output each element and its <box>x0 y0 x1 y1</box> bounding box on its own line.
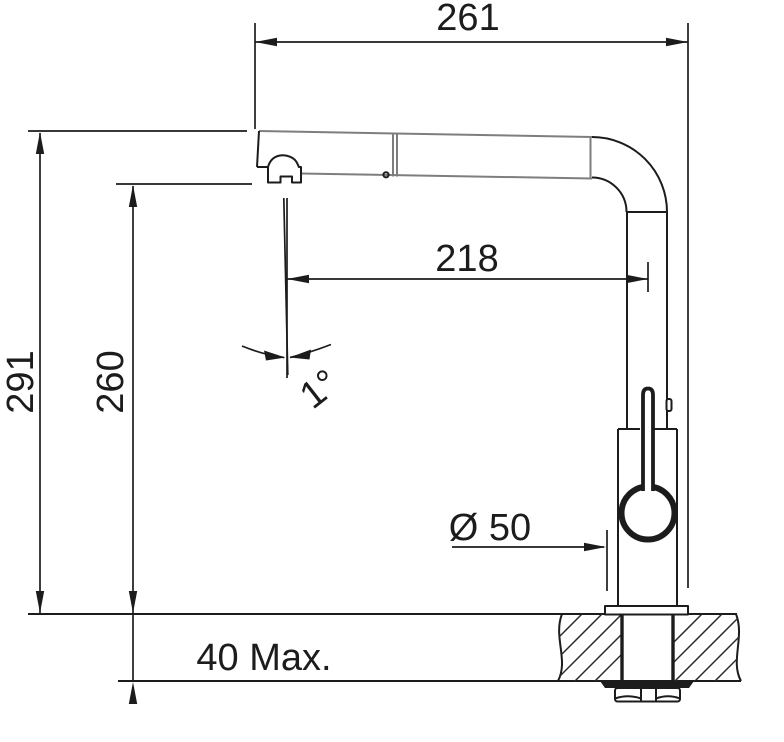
countertop-break-edge-right <box>736 614 741 681</box>
arrowhead-down <box>36 591 44 613</box>
spout-front-edge <box>257 131 259 167</box>
handle-stem <box>643 389 653 492</box>
arrowhead-right <box>626 275 648 284</box>
mounting-nut <box>615 688 680 702</box>
riser-side-tab <box>667 399 672 411</box>
arrowhead-down <box>129 591 137 613</box>
angle-arrowhead-right <box>290 350 312 360</box>
mounting-washer <box>600 681 694 688</box>
dimension-base-diameter: Ø 50 <box>449 507 607 591</box>
dimension-spout-angle: 1° <box>242 198 347 417</box>
bend-outer-curve <box>592 137 667 212</box>
arrowhead-up <box>36 132 44 154</box>
faucet-bend <box>592 137 667 212</box>
dim-label-218: 218 <box>435 238 498 280</box>
arrowhead-left <box>255 38 277 47</box>
dim-label-291: 291 <box>0 350 42 413</box>
dimension-outlet-reach: 218 <box>287 238 648 292</box>
faucet-base-mounting <box>600 606 694 702</box>
dim-label-40max: 40 Max. <box>196 637 331 679</box>
faucet-dimension-diagram: 261 218 291 260 40 Max. 1° <box>0 0 784 742</box>
arrowhead-up-below <box>129 682 137 704</box>
arrowhead-up <box>129 185 137 207</box>
dim-label-261: 261 <box>436 0 499 39</box>
countertop-break-edge-left <box>558 614 562 681</box>
arrowhead-left <box>287 275 309 284</box>
arrowhead-right <box>666 38 688 47</box>
countertop-hatching-left <box>515 614 662 681</box>
dim-label-260: 260 <box>90 350 132 413</box>
handle-ring <box>622 487 675 540</box>
base-flange <box>605 606 688 615</box>
technical-drawing-canvas: 261 218 291 260 40 Max. 1° <box>0 0 784 742</box>
faucet-spout-tube <box>259 131 592 179</box>
dimension-counter-thickness: 40 Max. <box>129 614 332 704</box>
faucet-outline <box>257 131 694 702</box>
dim-label-angle: 1° <box>292 362 346 417</box>
spout-top-line <box>259 131 592 137</box>
spray-head-dome <box>257 155 301 173</box>
bend-inner-curve <box>592 178 627 213</box>
dimension-outlet-height: 260 <box>90 184 252 613</box>
spout-bottom-line <box>301 174 592 179</box>
dim-label-diameter: Ø 50 <box>449 507 531 549</box>
aerator-outlet <box>268 167 301 183</box>
arrowhead-right <box>584 543 606 552</box>
countertop-hatching-right <box>635 614 782 681</box>
angle-arrowhead-left <box>264 351 286 361</box>
countertop-section <box>28 614 782 681</box>
spray-head <box>257 131 301 183</box>
